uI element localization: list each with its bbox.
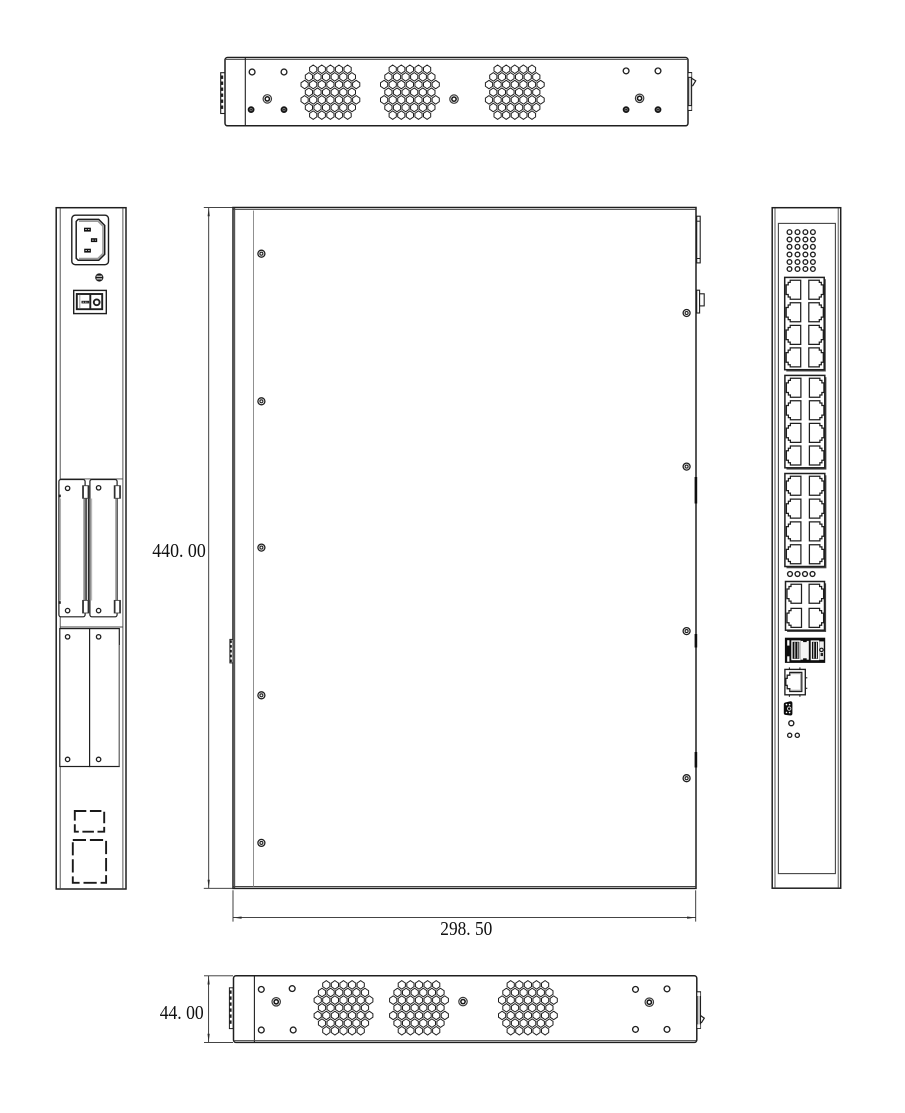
svg-text:44. 00: 44. 00 [160,1003,204,1024]
svg-text:440. 00: 440. 00 [152,541,206,562]
svg-text:298. 50: 298. 50 [440,919,492,940]
